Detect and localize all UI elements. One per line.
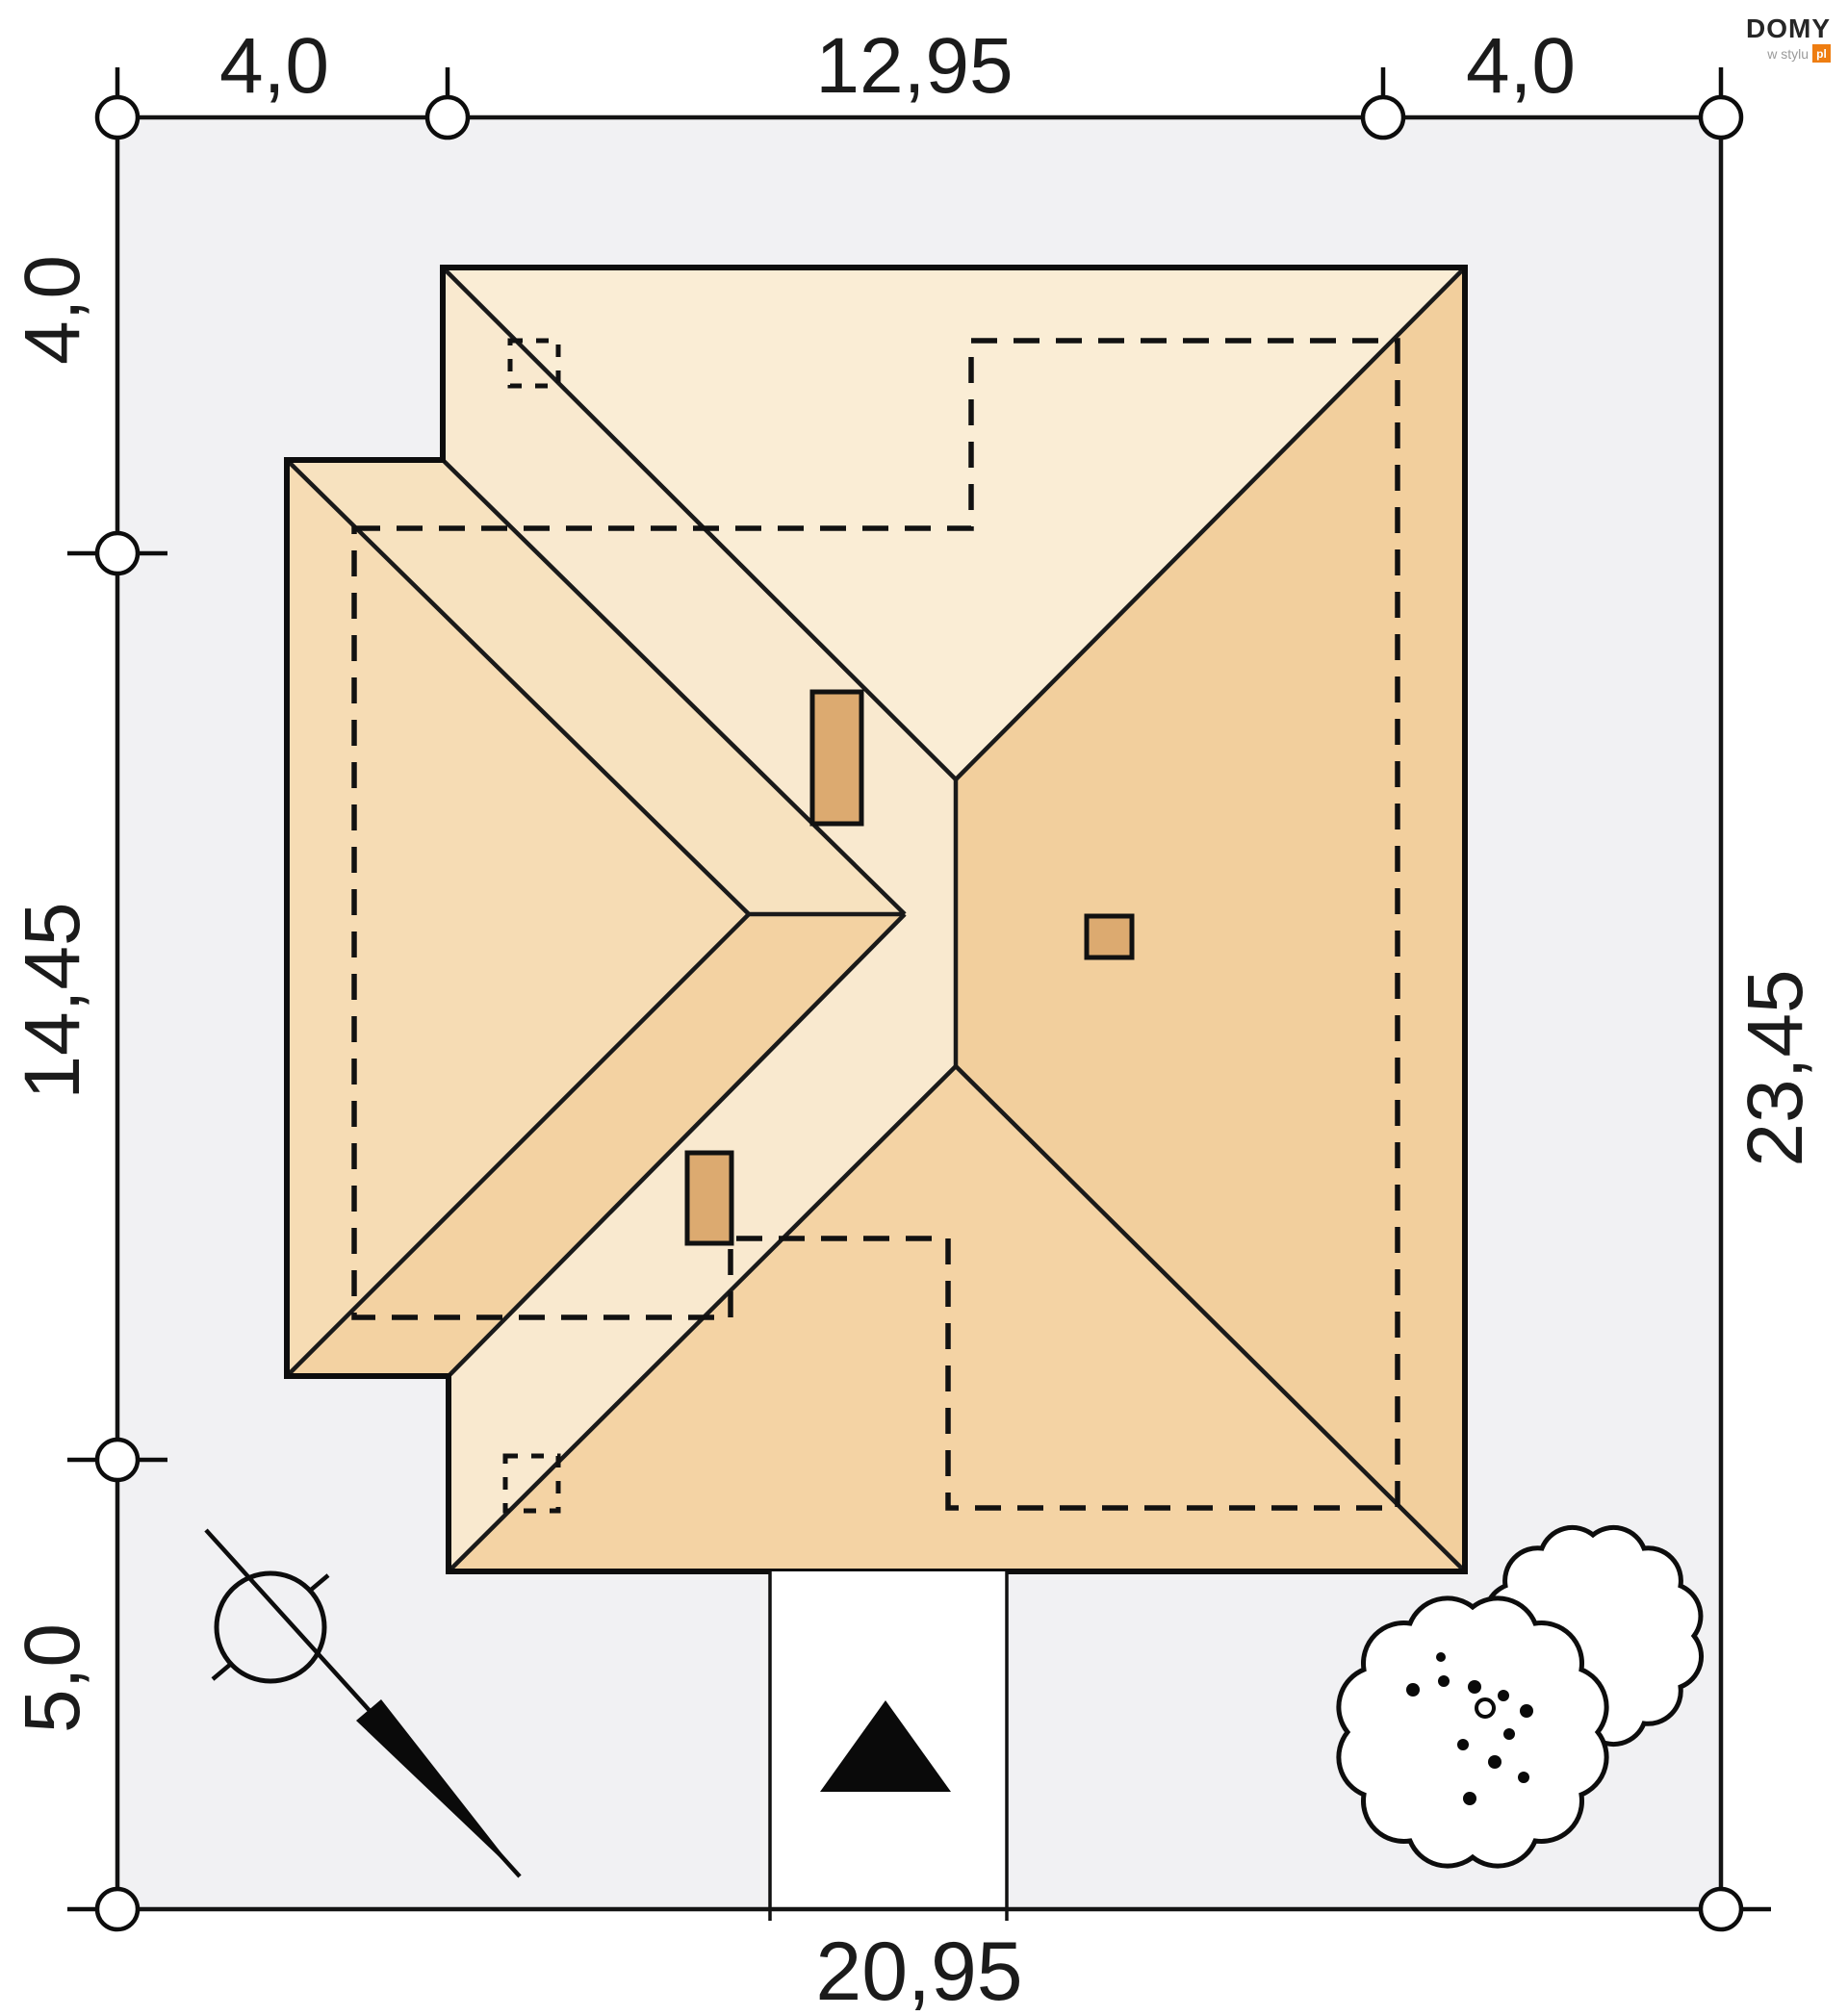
brand-tagline: w stylu: [1767, 47, 1809, 61]
dimension-label-left-middle: 14,45: [9, 902, 96, 1099]
brand-domain-badge: pl: [1812, 44, 1831, 63]
site-plan-page: 4,0 12,95 4,0 4,0 14,45 5,0 23,45 20,95 …: [0, 0, 1848, 2016]
brand-logo: DOMY w stylu pl: [1746, 15, 1831, 63]
dimension-label-top-right: 4,0: [1466, 22, 1576, 110]
driveway: [770, 1571, 1007, 1921]
chimney-tall: [812, 692, 861, 824]
chimney-south: [687, 1153, 731, 1243]
dimension-label-top-center: 12,95: [815, 22, 1013, 110]
chimney-east: [1087, 916, 1132, 957]
site-plan-svg: 4,0 12,95 4,0 4,0 14,45 5,0 23,45 20,95: [0, 0, 1848, 2016]
dimension-label-bottom: 20,95: [815, 1926, 1022, 2016]
dimension-label-left-upper: 4,0: [9, 255, 96, 365]
brand-name: DOMY: [1746, 15, 1831, 42]
dimension-label-left-lower: 5,0: [9, 1623, 96, 1733]
roof-plan: [287, 268, 1465, 1571]
tree-icon-large: [1339, 1598, 1606, 1866]
dimension-label-top-left: 4,0: [219, 22, 329, 110]
dimension-label-right: 23,45: [1732, 969, 1819, 1166]
